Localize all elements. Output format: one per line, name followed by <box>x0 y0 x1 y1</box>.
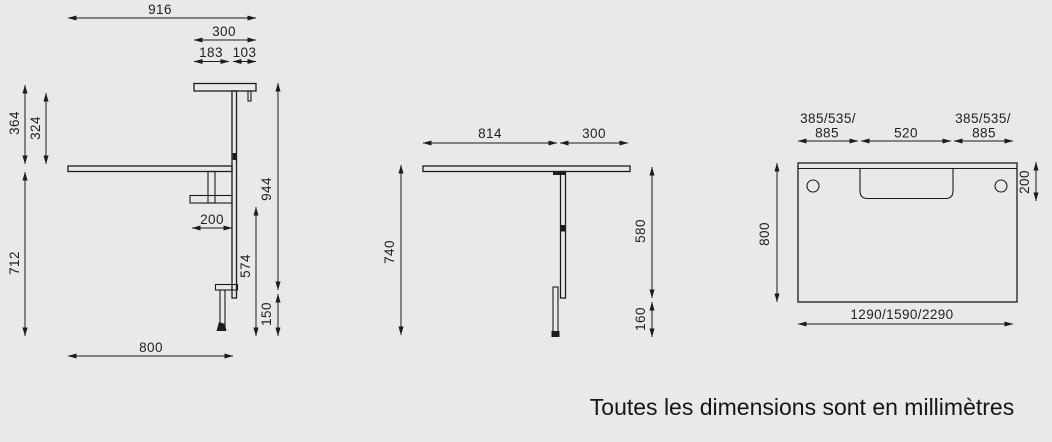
dim-right-offset-label-line2: 885 <box>972 126 996 141</box>
dim-300-label: 300 <box>212 24 236 39</box>
dim-740-label: 740 <box>382 240 397 264</box>
dim-364-label: 364 <box>7 111 22 135</box>
dim-depth-800-label: 800 <box>757 222 772 246</box>
dim-200-label: 200 <box>200 212 224 227</box>
dim-712-label: 712 <box>7 251 22 275</box>
dim-520-label: 520 <box>894 126 918 141</box>
background <box>0 0 1052 442</box>
dim-574-label: 574 <box>238 254 253 278</box>
technical-drawing: 916 300 183 103 364 324 712 944 574 150 … <box>0 0 1052 442</box>
units-caption: Toutes les dimensions sont en millimètre… <box>590 394 1014 420</box>
side-foot <box>552 331 560 337</box>
dim-183-label: 183 <box>199 45 223 60</box>
dim-side-300-label: 300 <box>582 126 606 141</box>
dim-324-label: 324 <box>28 116 43 140</box>
dim-160-label: 160 <box>633 307 648 331</box>
dim-814-label: 814 <box>478 126 502 141</box>
front-column-clamp-mark <box>233 153 237 160</box>
dim-right-offset-label-line1: 385/535/ <box>955 111 1011 126</box>
dim-left-offset-label-line2: 885 <box>815 126 839 141</box>
dim-left-offset-label-line1: 385/535/ <box>800 111 856 126</box>
dim-800-label: 800 <box>139 340 163 355</box>
side-leg-junction-mark <box>561 225 566 232</box>
dim-150-label: 150 <box>259 302 274 326</box>
dim-916-label: 916 <box>148 2 172 17</box>
dim-103-label: 103 <box>233 45 257 60</box>
dim-944-label: 944 <box>259 177 274 201</box>
dim-width-options-label: 1290/1590/2290 <box>850 307 953 322</box>
dim-notch-200-label: 200 <box>1017 170 1032 194</box>
dim-580-label: 580 <box>633 219 648 243</box>
